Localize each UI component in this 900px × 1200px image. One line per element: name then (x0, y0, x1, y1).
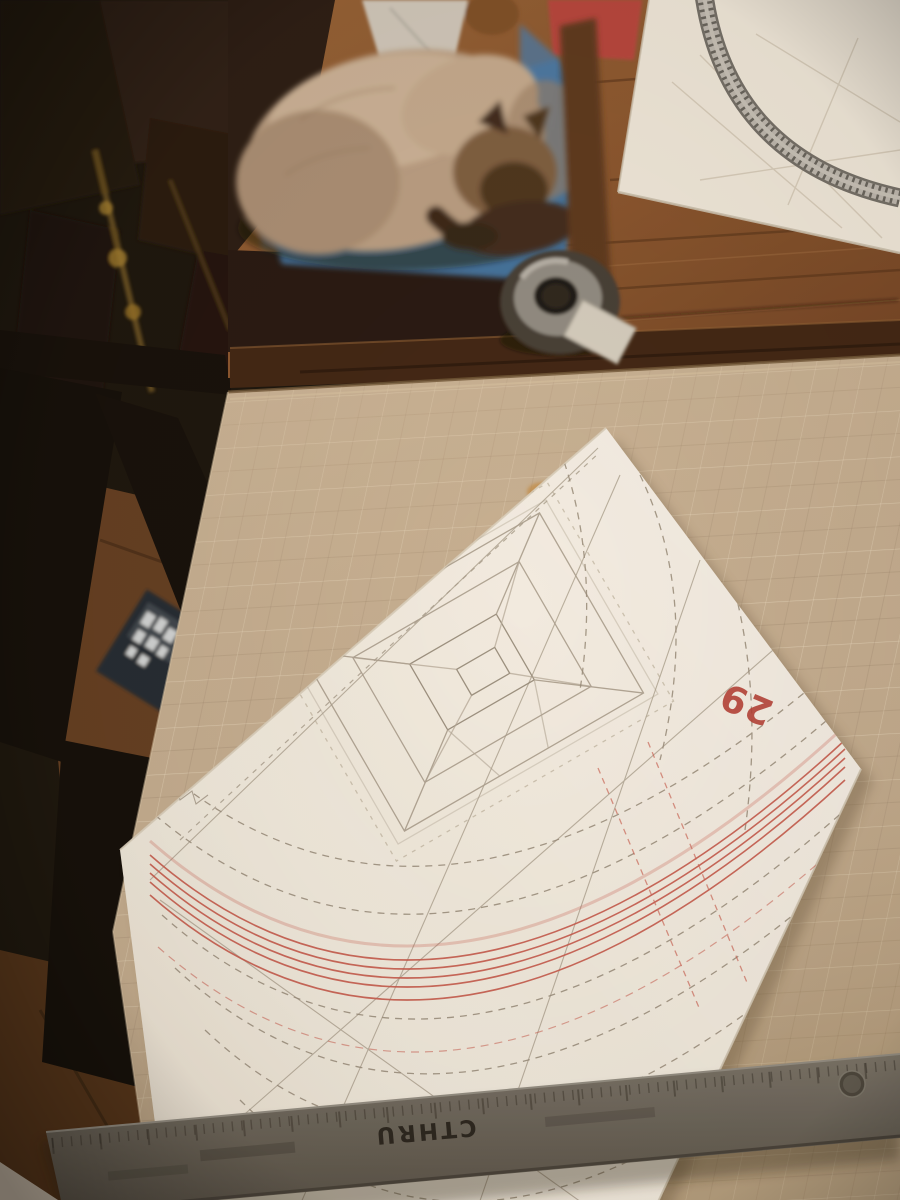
workspace-photo: 29 CTHRU (0, 0, 900, 1200)
vignette-overlay (0, 0, 900, 1200)
